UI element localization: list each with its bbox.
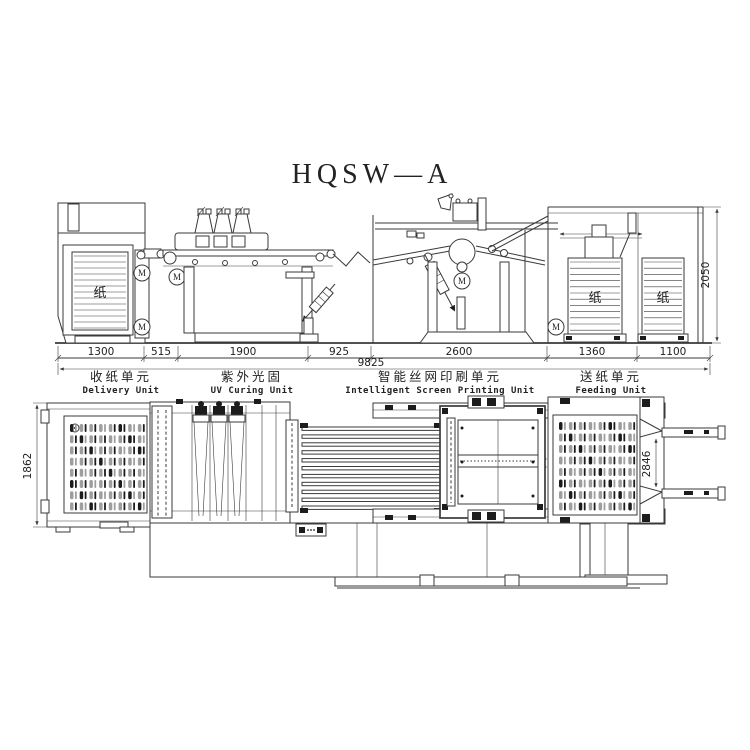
dim-label: 2846 [641, 450, 653, 477]
delivery-unit-elevation: 纸 M M [58, 203, 150, 343]
svg-text:Feeding Unit: Feeding Unit [575, 385, 646, 396]
svg-text:紫外光固: 紫外光固 [221, 369, 283, 384]
page-title: HQSW—A [292, 159, 453, 190]
svg-text:智能丝网印刷单元: 智能丝网印刷单元 [378, 369, 502, 384]
paper-label: 纸 [93, 286, 106, 301]
dim-label: 2600 [446, 346, 473, 358]
svg-text:Delivery Unit: Delivery Unit [83, 385, 160, 396]
dim-label: 1862 [22, 453, 34, 480]
uv-lamp-hoods [195, 207, 251, 233]
printing-unit-elevation: M [373, 194, 558, 343]
svg-text:M: M [173, 272, 181, 282]
conveyor-plan [286, 420, 442, 513]
control-panel [296, 524, 326, 536]
delivery-unit-plan [41, 403, 150, 532]
roller-bars [302, 427, 440, 509]
dim-label: 2050 [700, 262, 712, 289]
svg-text:M: M [458, 276, 466, 286]
dim-label: 1900 [230, 346, 257, 358]
paper-label: 纸 [588, 291, 601, 306]
uv-curing-unit-plan [150, 399, 290, 523]
dim-label: 1360 [579, 346, 606, 358]
unit-label-uv-curing: 紫外光固 UV Curing Unit [211, 369, 294, 396]
svg-text:收纸单元: 收纸单元 [90, 369, 152, 384]
paper-label: 纸 [656, 291, 669, 306]
feeder-rails [662, 426, 725, 500]
unit-label-feeding: 送纸单元 Feeding Unit [575, 369, 646, 396]
dim-label: 515 [151, 346, 171, 358]
feeding-unit-elevation: 纸 纸 M [548, 207, 703, 343]
machine-drawing-canvas: HQSW—A 纸 M M M [0, 0, 750, 750]
perforated-table [553, 415, 637, 515]
dim-label: 925 [329, 346, 349, 358]
svg-text:M: M [138, 268, 146, 278]
sheet-path [286, 252, 370, 342]
technical-drawing: HQSW—A 纸 M M M [0, 0, 750, 750]
elevation-view: 纸 M M M [55, 194, 721, 396]
svg-text:M: M [552, 322, 560, 332]
impression-cylinder [449, 239, 475, 265]
svg-text:M: M [138, 322, 146, 332]
base-frames-plan [150, 523, 667, 588]
unit-labels: 收纸单元 Delivery Unit 紫外光固 UV Curing Unit 智… [83, 369, 647, 396]
dim-label-total: 9825 [358, 357, 385, 369]
unit-label-delivery: 收纸单元 Delivery Unit [83, 369, 160, 396]
feeding-unit-plan: 2846 [548, 397, 725, 523]
dim-label: 1100 [660, 346, 687, 358]
svg-text:Intelligent Screen Printing Un: Intelligent Screen Printing Unit [345, 385, 534, 396]
dim-label: 1300 [88, 346, 115, 358]
print-head [407, 194, 486, 238]
unit-label-printing: 智能丝网印刷单元 Intelligent Screen Printing Uni… [345, 369, 534, 396]
svg-text:UV Curing Unit: UV Curing Unit [211, 385, 294, 396]
svg-text:送纸单元: 送纸单元 [580, 369, 642, 384]
plan-view: 1862 [22, 396, 725, 588]
suction-head [592, 225, 606, 237]
